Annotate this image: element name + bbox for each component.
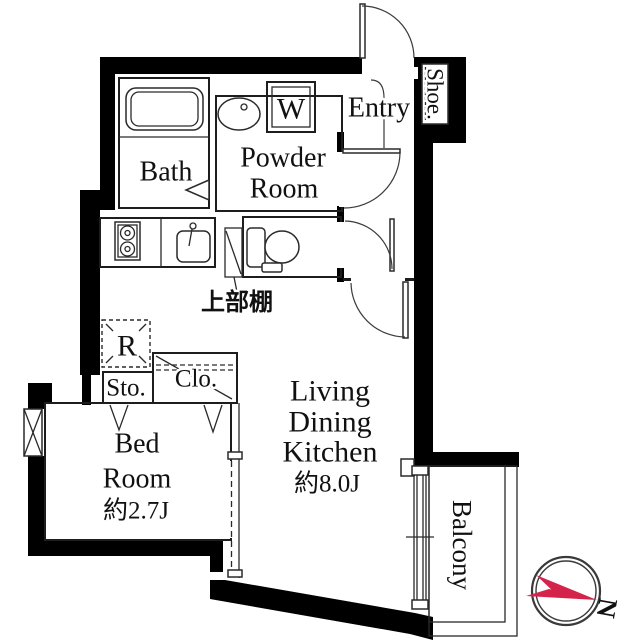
- ldk-label-2: Dining: [288, 406, 371, 439]
- balcony: Balcony: [401, 459, 517, 636]
- toilet-door-arc: [345, 221, 392, 269]
- wall-left-stub: [82, 370, 91, 405]
- powder-room: W Powder Room: [216, 82, 345, 211]
- bathtub: [126, 88, 203, 130]
- wall-top: [100, 57, 362, 74]
- wall-bed-left-upper: [28, 403, 45, 409]
- wall-left-mid: [80, 190, 100, 375]
- interior-doors: [343, 149, 414, 338]
- bed-label-2: Room: [103, 464, 172, 495]
- toilet-bowl: [265, 231, 299, 263]
- toilet-door-opening: [338, 222, 344, 268]
- toilet-tank: [247, 228, 265, 267]
- balcony-label: Balcony: [447, 500, 477, 590]
- powder-door-arc: [344, 153, 400, 208]
- entry-door-jamb-notch: [413, 67, 418, 79]
- toilet-room: [243, 217, 344, 277]
- ldk-door-leaf: [403, 282, 408, 338]
- powder-door-opening: [339, 152, 345, 207]
- bed-area-label: 約2.7J: [103, 497, 169, 525]
- washer-label: W: [277, 93, 306, 126]
- ldk-area-label: 約8.0J: [294, 470, 360, 498]
- kitchen: [100, 218, 215, 267]
- slider-sill-top: [228, 452, 242, 459]
- wall-left-upper: [100, 57, 115, 210]
- wall-bed-bottom: [28, 540, 223, 556]
- powder-label-1: Powder: [240, 143, 326, 174]
- kitchen-sink: [177, 231, 210, 262]
- bath-label: Bath: [140, 157, 193, 188]
- ldk-door-arc: [351, 283, 405, 337]
- bed-room: Bed Room 約2.7J: [24, 403, 233, 540]
- wall-bed-step: [210, 540, 223, 572]
- ldk-label-3: Kitchen: [283, 436, 378, 469]
- balcony-sill-top: [412, 466, 428, 475]
- refrigerator-label: R: [117, 330, 137, 363]
- sink-faucet: [190, 223, 196, 229]
- balcony-sill-bottom: [412, 600, 428, 609]
- wash-basin: [218, 98, 260, 130]
- folding-door-mark-2: [204, 405, 222, 432]
- toilet-seat-step: [262, 263, 282, 272]
- wall-balcony-top: [433, 452, 519, 467]
- wall-right: [414, 143, 433, 467]
- storage-label: Sto.: [106, 375, 146, 402]
- bath-room: Bath: [119, 78, 209, 208]
- powder-label-2: Room: [250, 174, 319, 205]
- entry-door-arc: [362, 6, 414, 58]
- powder-door-leaf: [343, 149, 400, 153]
- entry-label: Entry: [348, 93, 410, 124]
- compass: N: [526, 557, 623, 625]
- closet-label: Clo.: [175, 366, 217, 393]
- ldk-room: Living Dining Kitchen 約8.0J: [283, 375, 378, 498]
- wall-diagonal: [210, 580, 433, 640]
- compass-north-label: N: [590, 596, 623, 621]
- upper-shelf-label: 上部棚: [201, 288, 273, 316]
- bed-label-1: Bed: [114, 429, 159, 460]
- slider-sill-bottom: [228, 570, 242, 577]
- wall-bed-corner: [28, 383, 52, 403]
- stove: [115, 222, 140, 260]
- folding-door-mark-1: [110, 405, 128, 430]
- ldk-label-1: Living: [290, 375, 370, 408]
- shoe-label: Shoe.: [423, 68, 448, 120]
- floor-plan: Bath W Powder Room 上部棚: [0, 0, 640, 640]
- storage-area: R Sto. Clo.: [102, 320, 237, 432]
- entry-door-leaf: [360, 4, 365, 58]
- shelf-diagonal: [226, 231, 241, 274]
